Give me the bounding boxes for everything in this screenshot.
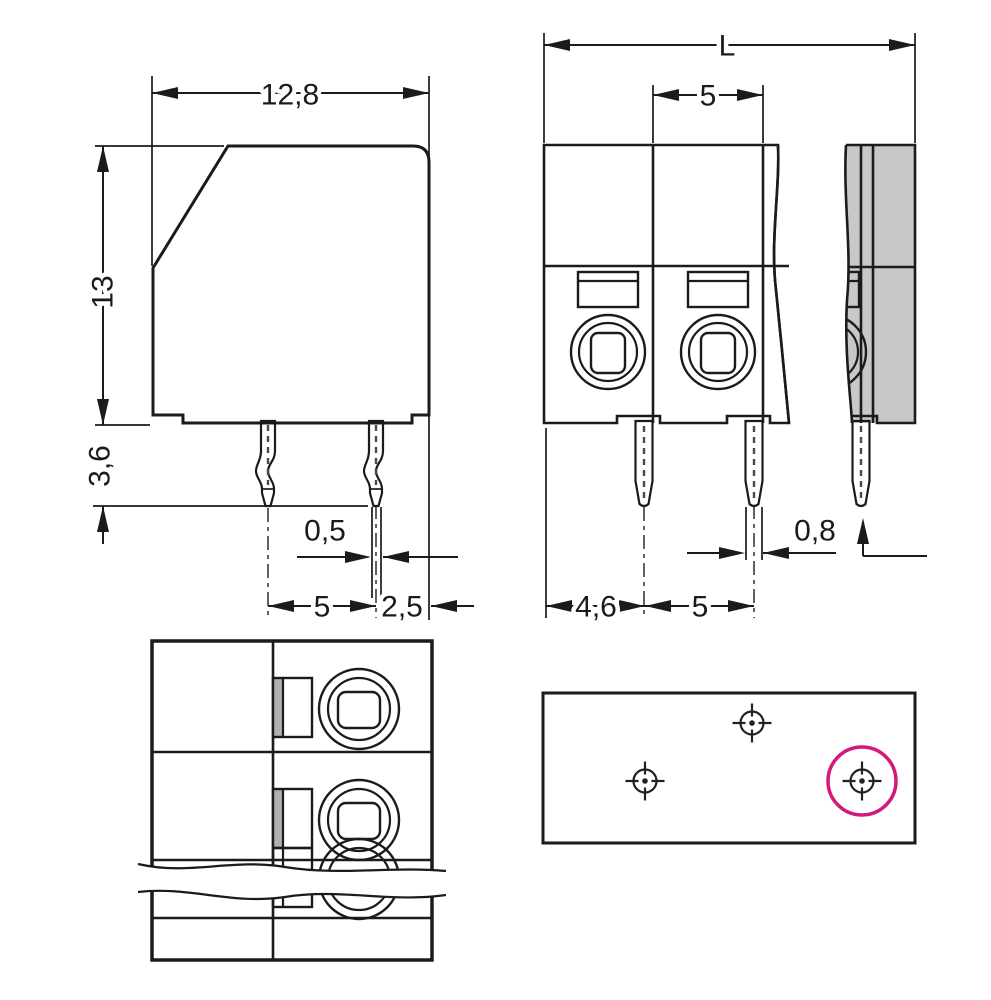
pole-front bbox=[571, 272, 645, 389]
dim-label-pin-spacing: 5 bbox=[314, 591, 331, 624]
arrowhead-left bbox=[152, 87, 178, 99]
arrowhead-right bbox=[737, 89, 763, 101]
drill-hole-marker bbox=[626, 762, 665, 801]
arrowhead-right bbox=[350, 600, 376, 612]
dim-label-pin-edge-offset: 2,5 bbox=[381, 591, 423, 624]
solder-pin bbox=[364, 421, 383, 506]
dim-label-pin-pitch: 5 bbox=[692, 591, 709, 624]
arrowhead-right bbox=[728, 600, 754, 612]
drill-hole-marker-highlighted bbox=[828, 747, 896, 815]
arrowhead-left bbox=[546, 600, 572, 612]
pushbutton bbox=[338, 803, 380, 839]
dimension-width: 12,8 bbox=[152, 79, 429, 112]
clamp-opening-outer bbox=[319, 669, 399, 749]
dim-label-pole-pitch: 5 bbox=[700, 80, 717, 113]
pole-front bbox=[681, 272, 755, 389]
pole-top bbox=[273, 669, 399, 749]
arrowhead-right bbox=[889, 39, 915, 51]
arrowhead-left bbox=[763, 547, 789, 559]
pushbutton bbox=[338, 692, 380, 728]
arrowhead-right bbox=[403, 87, 429, 99]
clamp-opening-outer bbox=[571, 315, 645, 389]
drill-hole-marker bbox=[733, 704, 772, 743]
arrowhead-left bbox=[645, 600, 671, 612]
arrowhead-left bbox=[653, 89, 679, 101]
dim-label-pin-tip-width: 0,5 bbox=[304, 515, 346, 548]
dimension-pin-edge-offset: 2,5 bbox=[381, 591, 474, 624]
dim-label-first-pin-offset: 4,6 bbox=[575, 591, 617, 624]
top-view bbox=[138, 641, 446, 960]
dimension-pin-length: 3,6 bbox=[84, 445, 117, 544]
housing-end-section bbox=[792, 145, 915, 423]
clamp-opening-outer bbox=[681, 315, 755, 389]
dimension-pin-tip-width: 0,5 bbox=[297, 515, 458, 564]
dimension-first-pin-offset: 4,6 bbox=[546, 591, 645, 624]
solder-pin bbox=[746, 421, 763, 506]
pcb-outline bbox=[543, 693, 915, 843]
solder-pin bbox=[853, 421, 870, 506]
pushbutton bbox=[701, 333, 735, 373]
dimension-pole-pitch: 5 bbox=[653, 80, 763, 113]
solder-pin bbox=[636, 421, 653, 506]
arrowhead-up bbox=[97, 506, 109, 532]
drilling-plan bbox=[543, 693, 915, 843]
housing-body-front bbox=[544, 145, 789, 423]
arrowhead-left bbox=[544, 39, 570, 51]
technical-drawing-page: 12,8 13 3,6 bbox=[0, 0, 991, 1000]
arrowhead-right bbox=[719, 547, 745, 559]
arrowhead-left bbox=[268, 600, 294, 612]
dim-label-pin-width: 0,8 bbox=[794, 515, 836, 548]
dimension-total-length: L bbox=[544, 30, 915, 63]
solder-direction-arrow bbox=[857, 518, 927, 556]
arrowhead-right bbox=[619, 600, 645, 612]
dimension-pin-pitch: 5 bbox=[645, 591, 754, 624]
dim-label-height: 13 bbox=[87, 275, 120, 308]
slot-shadow bbox=[273, 678, 283, 737]
arrowhead-down bbox=[97, 399, 109, 425]
dimension-pin-spacing: 5 bbox=[268, 591, 376, 624]
break-edge-left bbox=[774, 145, 789, 423]
dim-label-pin-length: 3,6 bbox=[84, 445, 117, 487]
side-view: 12,8 13 3,6 bbox=[84, 76, 475, 624]
wire-entry-opening bbox=[688, 272, 748, 307]
arrowhead-right bbox=[345, 551, 371, 563]
wire-entry-opening bbox=[578, 272, 638, 307]
arrowhead-left bbox=[431, 600, 457, 612]
extension-lines bbox=[93, 76, 429, 620]
dimension-height: 13 bbox=[87, 146, 120, 425]
housing-body-top bbox=[152, 641, 432, 960]
arrowhead-left bbox=[383, 551, 409, 563]
dim-label-total-length: L bbox=[719, 30, 736, 63]
slot-shadow bbox=[273, 789, 283, 848]
dim-label-width: 12,8 bbox=[261, 79, 319, 112]
solder-pin bbox=[256, 421, 275, 506]
arrowhead-up bbox=[97, 146, 109, 172]
pushbutton bbox=[591, 333, 625, 373]
front-view: L 5 bbox=[544, 30, 927, 624]
housing-body-side bbox=[153, 146, 429, 423]
